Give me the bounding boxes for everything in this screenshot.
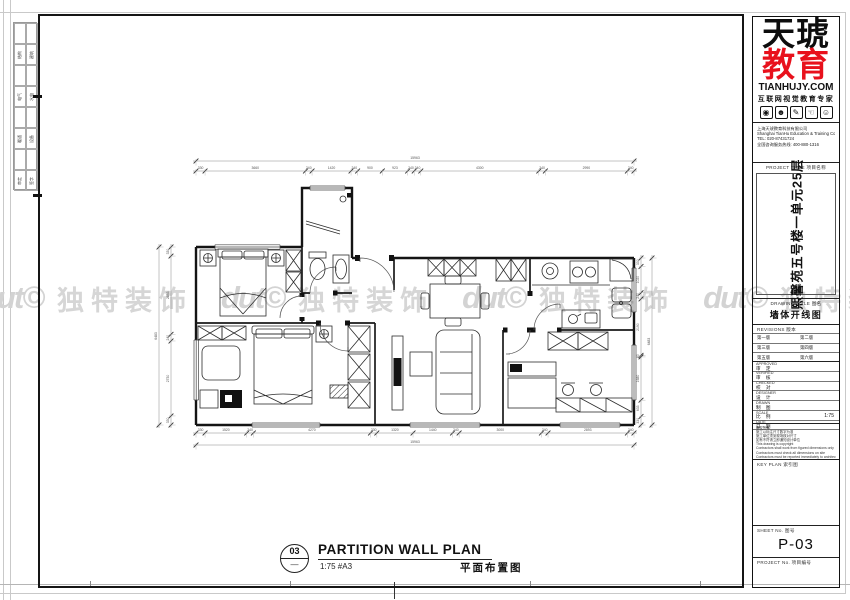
note-line: Contractors must be reported immediately…: [756, 455, 836, 459]
centering-mark: [33, 194, 42, 197]
brand-tagline: 互联网视觉教育专家: [753, 94, 839, 104]
brand-site: TIANHUJY.COM: [753, 82, 839, 93]
svg-text:3660: 3660: [251, 166, 259, 170]
svg-text:900: 900: [367, 166, 373, 170]
field-scale: SCALE比 例1:75: [753, 411, 839, 421]
svg-text:4300: 4300: [476, 166, 484, 170]
dim-left-segments: 33028532402730330: [166, 244, 175, 428]
pencil-icon: ✎: [790, 106, 803, 119]
field-verified: VERIFIED审 核: [753, 372, 839, 382]
svg-text:923: 923: [392, 166, 398, 170]
dim-left-overall: 6483: [154, 244, 163, 428]
field-designer: DESIGNER设 计: [753, 391, 839, 401]
notes-section: 版权所有 施工以标注尺寸数字为准 施工单位须到现场核对尺寸 如有不符请立即通知设…: [753, 424, 839, 460]
eye-icon: ◉: [760, 106, 773, 119]
svg-text:15963: 15963: [410, 440, 420, 444]
brand-line1: 天琥: [753, 19, 839, 49]
svg-text:240: 240: [306, 166, 312, 170]
dim-top-segments: 3303660240142024090092324024043002402990…: [193, 166, 637, 175]
drawing-title-label: DRAWING TITLE 图名: [753, 299, 839, 307]
sheet-number-label: SHEET No. 图号: [753, 526, 839, 534]
field-checked: CHECKED校 对: [753, 382, 839, 392]
field-drawn: DRAWN制 图: [753, 401, 839, 411]
sheet-number: P-03: [753, 536, 839, 553]
revision-cell: 第五版: [753, 353, 796, 362]
dim-right-segments: 33010202402190601680633330: [636, 255, 645, 428]
field-approved: APPROVED审 定: [753, 362, 839, 372]
project-number-section: PROJECT No. 项目编号: [753, 558, 839, 582]
centering-mark: [33, 95, 42, 98]
smile-icon: ☺: [820, 106, 833, 119]
furniture: [198, 193, 633, 414]
svg-text:240: 240: [351, 166, 357, 170]
sheet-number-section: SHEET No. 图号 P-03: [753, 526, 839, 558]
key-plan-section: KEY PLAN 索引图: [753, 460, 839, 526]
svg-text:2990: 2990: [583, 166, 591, 170]
svg-text:240: 240: [539, 166, 545, 170]
key-plan-label: KEY PLAN 索引图: [753, 460, 839, 468]
plan-scale: 1:75 #A3: [320, 562, 352, 571]
brand-logo: 天琥 教育 TIANHUJY.COM 互联网视觉教育专家 ◉ ☻ ✎ ☜ ☺: [753, 17, 839, 123]
drawing-title-section: DRAWING TITLE 图名 墙体开线图: [753, 299, 839, 325]
hatched-shaft: [330, 385, 348, 398]
svg-text:3000: 3000: [497, 428, 505, 432]
drawing-title: 墙体开线图: [753, 308, 839, 321]
detail-denominator: —: [281, 559, 308, 570]
dim-bottom-overall: 15963: [193, 440, 637, 449]
svg-text:240: 240: [415, 166, 421, 170]
svg-text:1440: 1440: [429, 428, 437, 432]
svg-text:330: 330: [166, 418, 170, 424]
detail-number: 03: [281, 545, 308, 559]
revisions-label: REVISIONS 版本: [753, 325, 839, 333]
svg-text:240: 240: [453, 428, 459, 432]
svg-text:1420: 1420: [328, 166, 336, 170]
revision-cell: 第二版: [796, 334, 839, 343]
svg-text:330: 330: [198, 166, 204, 170]
drawing-sheet: { "watermark": { "logo": "dut©", "text":…: [0, 0, 850, 600]
svg-text:1320: 1320: [391, 428, 399, 432]
floor-plan-drawing: 3303660240142024090092324024043002402990…: [0, 0, 850, 600]
company-hotline: 全国咨询服务热线: 400-880-1316: [757, 142, 835, 147]
svg-text:230: 230: [371, 428, 377, 432]
detail-number-bubble: 03 —: [280, 544, 309, 573]
brand-line2: 教育: [753, 49, 839, 81]
window-symbols: [194, 186, 636, 427]
dim-bottom-segments: 3301520240427023013201440240300024028932…: [193, 428, 637, 437]
signature-fields: APPROVED审 定 VERIFIED审 核 CHECKED校 对 DESIG…: [753, 362, 839, 424]
svg-text:633: 633: [636, 405, 640, 411]
revision-cell: 第三版: [753, 344, 796, 353]
brand-icon-row: ◉ ☻ ✎ ☜ ☺: [753, 106, 839, 119]
svg-text:6483: 6483: [154, 332, 158, 340]
svg-text:330: 330: [636, 259, 640, 265]
dim-top-overall: 15963: [193, 156, 637, 165]
svg-text:2190: 2190: [636, 323, 640, 331]
project-title-box: 熙馨苑五号楼一单元25层: [756, 173, 836, 295]
plan-title: PARTITION WALL PLAN: [318, 542, 492, 560]
svg-text:1020: 1020: [636, 276, 640, 284]
revisions-section: REVISIONS 版本 第一版第二版 第三版第四版 第五版第六版: [753, 325, 839, 362]
person-icon: ☻: [775, 106, 788, 119]
revision-cell: 第六版: [796, 353, 839, 362]
revision-cell: 第四版: [796, 344, 839, 353]
svg-text:15963: 15963: [410, 156, 420, 160]
svg-text:240: 240: [408, 166, 414, 170]
svg-text:240: 240: [542, 428, 548, 432]
title-block: 天琥 教育 TIANHUJY.COM 互联网视觉教育专家 ◉ ☻ ✎ ☜ ☺ 上…: [752, 16, 840, 588]
dim-right-overall: 6483: [647, 255, 656, 428]
svg-text:240: 240: [166, 335, 170, 341]
plan-subtitle: 平面布置图: [460, 560, 523, 575]
svg-text:60: 60: [636, 354, 640, 358]
hand-icon: ☜: [805, 106, 818, 119]
company-info: 上海天琥教育科技有限公司 Shanghai TianHu Education &…: [753, 123, 839, 163]
svg-text:330: 330: [198, 428, 204, 432]
svg-text:240: 240: [247, 428, 253, 432]
project-number-label: PROJECT No. 项目编号: [753, 558, 839, 566]
svg-text:2730: 2730: [166, 375, 170, 383]
svg-text:330: 330: [636, 418, 640, 424]
svg-text:6483: 6483: [647, 338, 651, 346]
project-title-section: PROJECT TITLE 项目名称 熙馨苑五号楼一单元25层: [753, 163, 839, 299]
svg-text:240: 240: [628, 166, 634, 170]
appliance-solids: [220, 358, 522, 408]
project-title: 熙馨苑五号楼一单元25层: [787, 159, 806, 310]
revision-cell: 第一版: [753, 334, 796, 343]
door-swings: [280, 258, 560, 354]
svg-text:2893: 2893: [584, 428, 592, 432]
svg-text:1680: 1680: [636, 375, 640, 383]
svg-text:1520: 1520: [222, 428, 230, 432]
note-line: Contractors shall work from figured dime…: [756, 446, 836, 450]
svg-text:330: 330: [166, 249, 170, 255]
svg-text:240: 240: [628, 428, 634, 432]
exterior-walls: [196, 188, 634, 425]
svg-text:2853: 2853: [166, 291, 170, 299]
svg-text:240: 240: [636, 293, 640, 299]
svg-text:4270: 4270: [308, 428, 316, 432]
